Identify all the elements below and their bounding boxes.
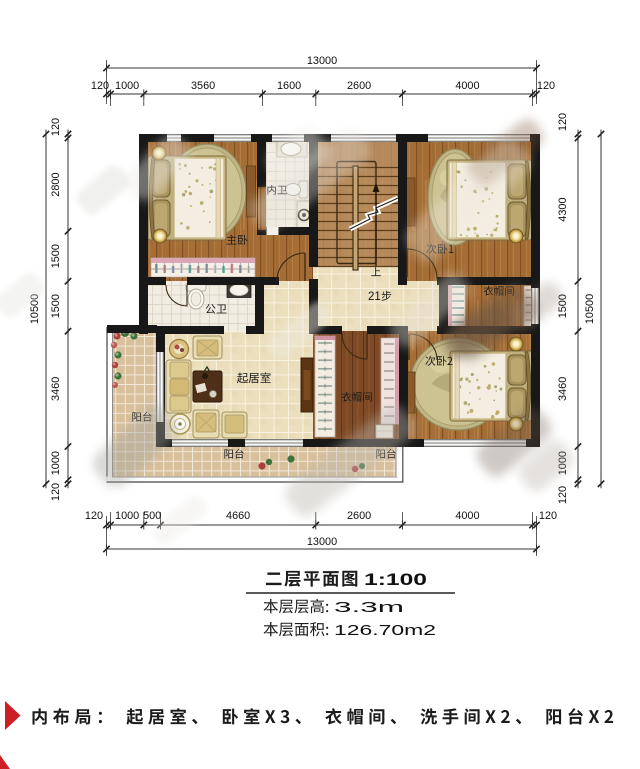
svg-text:21: 21 [368,291,381,303]
svg-text:2800: 2800 [50,173,62,197]
svg-text:1:100: 1:100 [364,571,427,589]
svg-text:1000: 1000 [115,510,139,522]
svg-text:4300: 4300 [557,198,569,222]
svg-text:120: 120 [50,118,62,136]
svg-text:1500: 1500 [50,294,62,318]
svg-text:13000: 13000 [307,536,337,548]
svg-text:3460: 3460 [50,377,62,401]
svg-text:3.3m: 3.3m [334,599,404,616]
svg-text:4660: 4660 [226,510,250,522]
svg-text:3460: 3460 [557,377,569,401]
svg-text:4000: 4000 [455,510,479,522]
svg-text:500: 500 [143,510,161,522]
svg-text:120: 120 [50,483,62,501]
svg-text:126.70m2: 126.70m2 [334,622,436,639]
svg-text:13000: 13000 [307,55,337,67]
svg-text:1600: 1600 [277,80,301,92]
svg-text:10500: 10500 [584,294,596,324]
svg-text:2600: 2600 [347,510,371,522]
svg-text:2600: 2600 [347,80,371,92]
svg-text:3560: 3560 [191,80,215,92]
svg-text:120: 120 [539,510,557,522]
svg-text:1000: 1000 [50,451,62,475]
svg-text:120: 120 [91,80,109,92]
svg-text:120: 120 [557,486,569,504]
svg-text:4000: 4000 [455,80,479,92]
svg-text:1500: 1500 [50,244,62,268]
svg-text:1000: 1000 [115,80,139,92]
svg-text:120: 120 [537,80,555,92]
svg-text:120: 120 [85,510,103,522]
svg-text:120: 120 [557,113,569,131]
